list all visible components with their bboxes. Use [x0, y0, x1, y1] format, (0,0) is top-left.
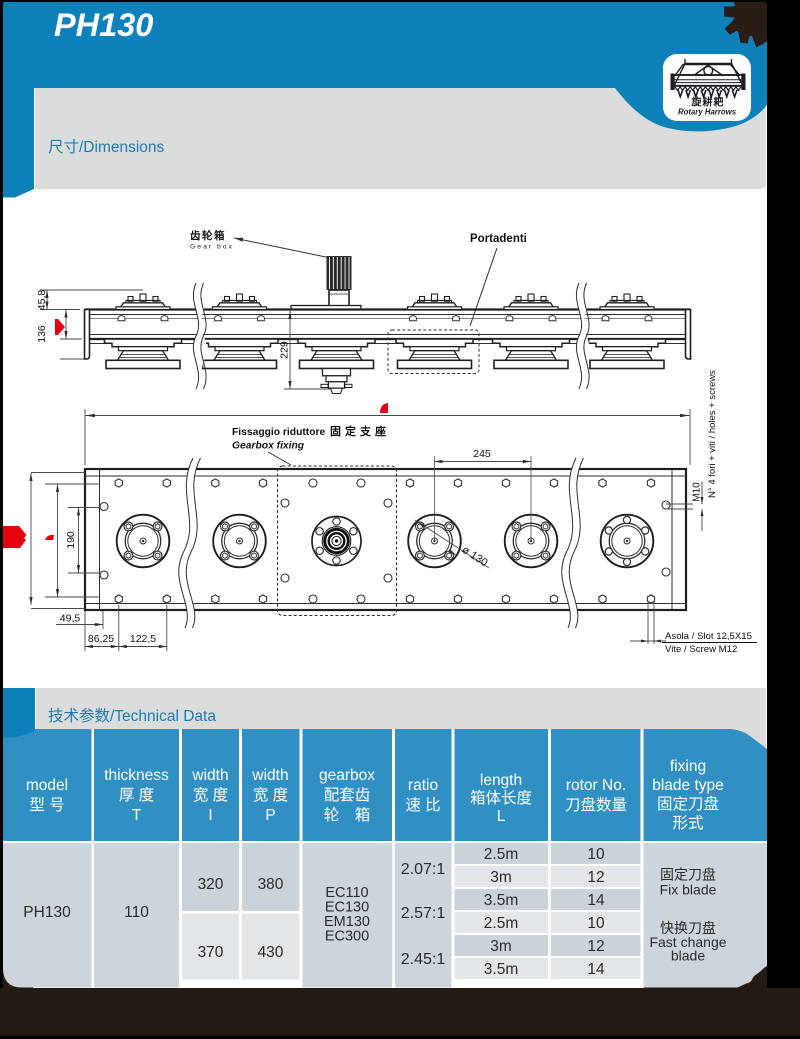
svg-text:blade: blade [671, 948, 705, 964]
svg-text:380: 380 [258, 876, 284, 893]
svg-text:M10: M10 [692, 482, 703, 502]
svg-text:thickness: thickness [104, 767, 169, 784]
svg-text:245: 245 [473, 448, 491, 460]
svg-text:14: 14 [587, 892, 605, 909]
svg-text:370: 370 [198, 944, 224, 961]
svg-text:EC300: EC300 [325, 929, 369, 945]
svg-text:Fix blade: Fix blade [660, 882, 717, 898]
svg-text:固定支座: 固定支座 [330, 424, 390, 438]
svg-text:固定刀盘: 固定刀盘 [660, 867, 716, 883]
svg-text:fixing: fixing [670, 758, 706, 775]
svg-text:430: 430 [258, 944, 284, 961]
svg-text:2.5m: 2.5m [484, 846, 518, 863]
svg-text:2.45:1: 2.45:1 [401, 951, 446, 968]
svg-text:2.57:1: 2.57:1 [401, 905, 446, 922]
svg-text:Rotary Harrows: Rotary Harrows [678, 108, 737, 117]
svg-text:12: 12 [587, 938, 604, 955]
svg-text:rotor No.: rotor No. [566, 777, 626, 794]
svg-text:86,25: 86,25 [88, 633, 114, 645]
svg-text:320: 320 [198, 876, 224, 893]
svg-text:宽 度: 宽 度 [193, 786, 228, 804]
svg-text:10: 10 [587, 846, 605, 863]
svg-text:gearbox: gearbox [319, 767, 375, 784]
svg-text:14: 14 [587, 961, 605, 978]
svg-text:厚 度: 厚 度 [119, 786, 154, 804]
svg-text:刀盘数量: 刀盘数量 [565, 795, 627, 814]
svg-text:3m: 3m [490, 938, 512, 955]
svg-text:配套齿: 配套齿 [324, 786, 371, 804]
svg-text:model: model [26, 777, 68, 794]
svg-text:110: 110 [124, 904, 149, 921]
svg-text:Portadenti: Portadenti [470, 233, 527, 245]
svg-text:PH130: PH130 [54, 7, 153, 43]
svg-text:形式: 形式 [672, 814, 703, 832]
svg-text:ratio: ratio [408, 777, 438, 794]
svg-text:轮 箱: 轮 箱 [324, 806, 371, 824]
svg-text:固定刀盘: 固定刀盘 [657, 794, 719, 813]
svg-text:122,5: 122,5 [130, 633, 156, 645]
svg-text:速 比: 速 比 [405, 796, 440, 814]
svg-text:I: I [208, 807, 212, 824]
svg-text:136: 136 [36, 325, 48, 343]
svg-text:12: 12 [587, 869, 604, 886]
svg-text:3.5m: 3.5m [484, 892, 518, 909]
svg-text:3m: 3m [490, 869, 512, 886]
svg-text:T: T [132, 807, 142, 824]
svg-text:齿轮箱: 齿轮箱 [190, 229, 226, 242]
svg-text:width: width [191, 767, 228, 784]
svg-text:箱体长度: 箱体长度 [470, 789, 532, 807]
svg-text:宽 度: 宽 度 [253, 786, 288, 804]
svg-text:width: width [251, 767, 288, 784]
svg-text:3.5m: 3.5m [484, 961, 518, 978]
svg-text:190: 190 [65, 531, 77, 549]
svg-text:技术参数/Technical Data: 技术参数/Technical Data [48, 707, 216, 725]
svg-text:Fissaggio riduttore: Fissaggio riduttore [232, 427, 326, 438]
svg-text:45,8: 45,8 [36, 290, 48, 311]
svg-text:2.07:1: 2.07:1 [401, 861, 446, 878]
svg-text:Asola / Slot 12,5X15: Asola / Slot 12,5X15 [665, 631, 752, 642]
svg-text:N° 4 fori + viti / holes + scr: N° 4 fori + viti / holes + screws [707, 370, 718, 498]
svg-text:2.5m: 2.5m [484, 915, 518, 932]
svg-text:blade type: blade type [652, 777, 724, 794]
svg-text:PH130: PH130 [23, 904, 71, 921]
svg-text:尺寸/Dimensions: 尺寸/Dimensions [48, 138, 165, 156]
svg-text:P: P [265, 807, 275, 824]
svg-text:Gear box: Gear box [190, 244, 234, 251]
svg-text:10: 10 [587, 915, 605, 932]
svg-text:229: 229 [279, 341, 291, 359]
svg-text:Vite / Screw M12: Vite / Screw M12 [665, 644, 737, 655]
svg-text:Gearbox fixing: Gearbox fixing [232, 441, 305, 452]
svg-text:length: length [480, 772, 522, 789]
svg-text:L: L [497, 808, 506, 825]
svg-text:型 号: 型 号 [29, 796, 64, 814]
svg-text:49,5: 49,5 [60, 613, 81, 625]
